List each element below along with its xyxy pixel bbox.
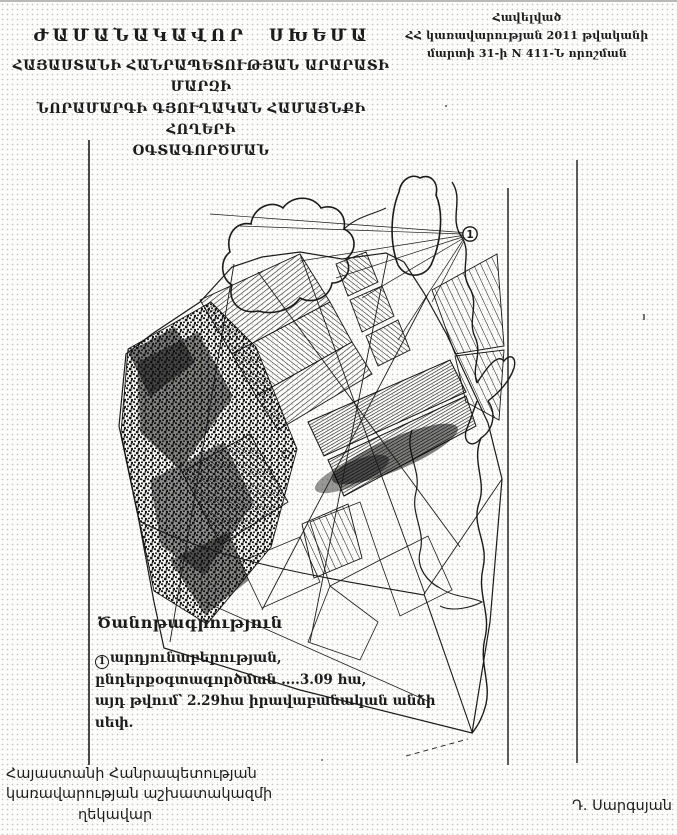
annex-note: Հավելված ՀՀ կառավարության 2011 թվականի մ… bbox=[388, 9, 666, 62]
legend-note-line: այդ թվում՝ 2.29հա իրավաբանական անձի սեփ. bbox=[95, 691, 440, 734]
document-page: 1 Հավելված ՀՀ կառավարության 2011 թվականի… bbox=[0, 0, 677, 835]
legend-note-line: ընդերքօգտագործման ....3.09 հա, bbox=[95, 670, 440, 692]
signature-line: ղեկավար bbox=[6, 805, 306, 825]
subtitle-line: ՀԱՅԱՍՏԱՆԻ ՀԱՆՐԱՊԵՏՈՒԹՅԱՆ ԱՐԱՐԱՏԻ ՄԱՐԶԻ bbox=[0, 56, 402, 99]
legend-note: 1արդյունաբերության, ընդերքօգտագործման ..… bbox=[95, 648, 440, 734]
signature-line: կառավարության աշխատակազմի bbox=[6, 784, 306, 804]
subtitle-line: ՕԳՏԱԳՈՐԾՄԱՆ bbox=[0, 141, 402, 162]
signatory-name: Դ. Սարգսյան bbox=[572, 798, 672, 814]
signature-block: Հայաստանի Հանրապետության կառավարության ա… bbox=[6, 764, 306, 825]
annex-note-line: Հավելված bbox=[388, 9, 666, 27]
legend-ref-marker-icon: 1 bbox=[95, 655, 109, 669]
legend-note-line-text: արդյունաբերության, bbox=[110, 650, 282, 666]
marker-label: 1 bbox=[466, 229, 473, 241]
page-subtitle: ՀԱՅԱՍՏԱՆԻ ՀԱՆՐԱՊԵՏՈՒԹՅԱՆ ԱՐԱՐԱՏԻ ՄԱՐԶԻ Ն… bbox=[0, 56, 402, 163]
annex-note-line: ՀՀ կառավարության 2011 թվականի bbox=[388, 27, 666, 45]
page-title: ԺԱՄԱՆԱԿԱՎՈՐ ՍԽԵՄԱ bbox=[18, 26, 386, 46]
legend-heading: Ծանոթագրություն bbox=[97, 613, 283, 632]
legend-note-line: 1արդյունաբերության, bbox=[95, 648, 440, 670]
subtitle-line: ՆՈՐԱՄԱՐԳԻ ԳՅՈՒՂԱԿԱՆ ՀԱՄԱՅՆՔԻ ՀՈՂԵՐԻ bbox=[0, 99, 402, 142]
signature-line: Հայաստանի Հանրապետության bbox=[6, 764, 306, 784]
annex-note-line: մարտի 31-ի N 411-Ն որոշման bbox=[388, 45, 666, 63]
